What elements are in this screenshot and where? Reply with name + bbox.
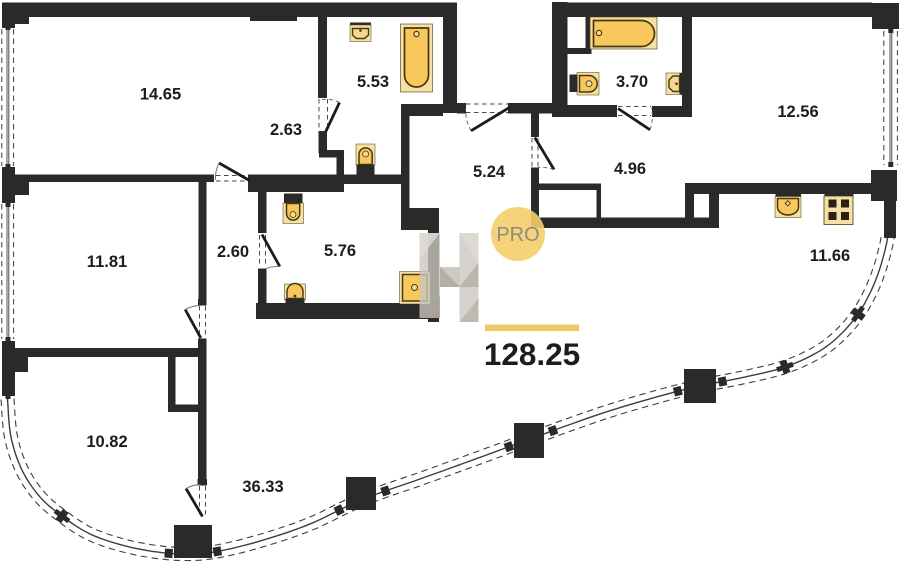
svg-text:4.96: 4.96 [614, 160, 646, 178]
svg-text:12.56: 12.56 [777, 103, 818, 121]
svg-text:2.63: 2.63 [270, 121, 302, 139]
svg-text:2.60: 2.60 [217, 243, 249, 261]
svg-text:3.70: 3.70 [616, 73, 648, 91]
svg-text:5.53: 5.53 [357, 73, 389, 91]
svg-text:36.33: 36.33 [242, 478, 283, 496]
svg-text:11.66: 11.66 [810, 247, 850, 265]
svg-text:128.25: 128.25 [484, 336, 580, 372]
svg-text:5.24: 5.24 [473, 163, 506, 181]
svg-text:14.65: 14.65 [140, 86, 181, 104]
svg-text:11.81: 11.81 [87, 253, 127, 271]
svg-text:10.82: 10.82 [86, 433, 127, 451]
svg-text:5.76: 5.76 [324, 242, 356, 260]
svg-text:PRO: PRO [496, 224, 539, 246]
